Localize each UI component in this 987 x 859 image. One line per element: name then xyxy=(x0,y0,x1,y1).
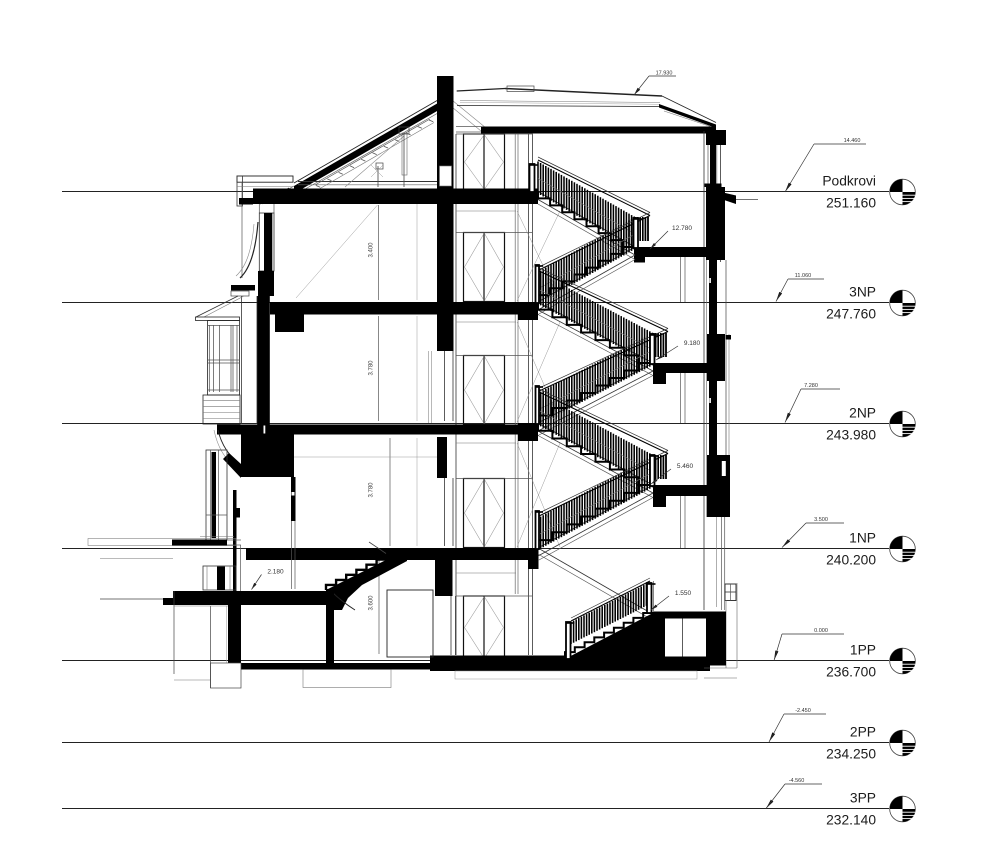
svg-text:232.140: 232.140 xyxy=(826,813,876,828)
svg-text:3.780: 3.780 xyxy=(369,482,375,498)
svg-text:1NP: 1NP xyxy=(849,531,876,546)
svg-text:9.180: 9.180 xyxy=(684,340,701,347)
svg-text:2NP: 2NP xyxy=(849,406,876,421)
svg-text:236.700: 236.700 xyxy=(826,665,876,680)
svg-text:1PP: 1PP xyxy=(850,643,876,658)
svg-text:1.550: 1.550 xyxy=(675,590,692,597)
svg-text:240.200: 240.200 xyxy=(826,553,876,568)
svg-text:3.500: 3.500 xyxy=(814,517,828,523)
svg-text:251.160: 251.160 xyxy=(826,196,876,211)
svg-text:-4.560: -4.560 xyxy=(789,778,805,784)
svg-text:2PP: 2PP xyxy=(850,725,876,740)
svg-text:11.060: 11.060 xyxy=(795,273,811,279)
svg-text:2.180: 2.180 xyxy=(267,569,284,576)
svg-text:0.000: 0.000 xyxy=(814,628,828,634)
svg-text:3.600: 3.600 xyxy=(369,595,375,611)
svg-text:3.400: 3.400 xyxy=(369,242,375,258)
svg-text:12.780: 12.780 xyxy=(672,225,692,232)
svg-text:5.460: 5.460 xyxy=(677,463,694,470)
svg-text:Podkrovi: Podkrovi xyxy=(822,174,876,189)
svg-text:243.980: 243.980 xyxy=(826,428,876,443)
svg-text:247.760: 247.760 xyxy=(826,307,876,322)
svg-text:7.280: 7.280 xyxy=(804,383,818,389)
svg-text:3.780: 3.780 xyxy=(369,360,375,376)
svg-text:3PP: 3PP xyxy=(850,791,876,806)
svg-text:3NP: 3NP xyxy=(849,285,876,300)
svg-text:234.250: 234.250 xyxy=(826,747,876,762)
svg-text:-2.450: -2.450 xyxy=(795,708,811,714)
svg-text:17.930: 17.930 xyxy=(656,71,673,77)
svg-text:14.460: 14.460 xyxy=(844,138,861,144)
